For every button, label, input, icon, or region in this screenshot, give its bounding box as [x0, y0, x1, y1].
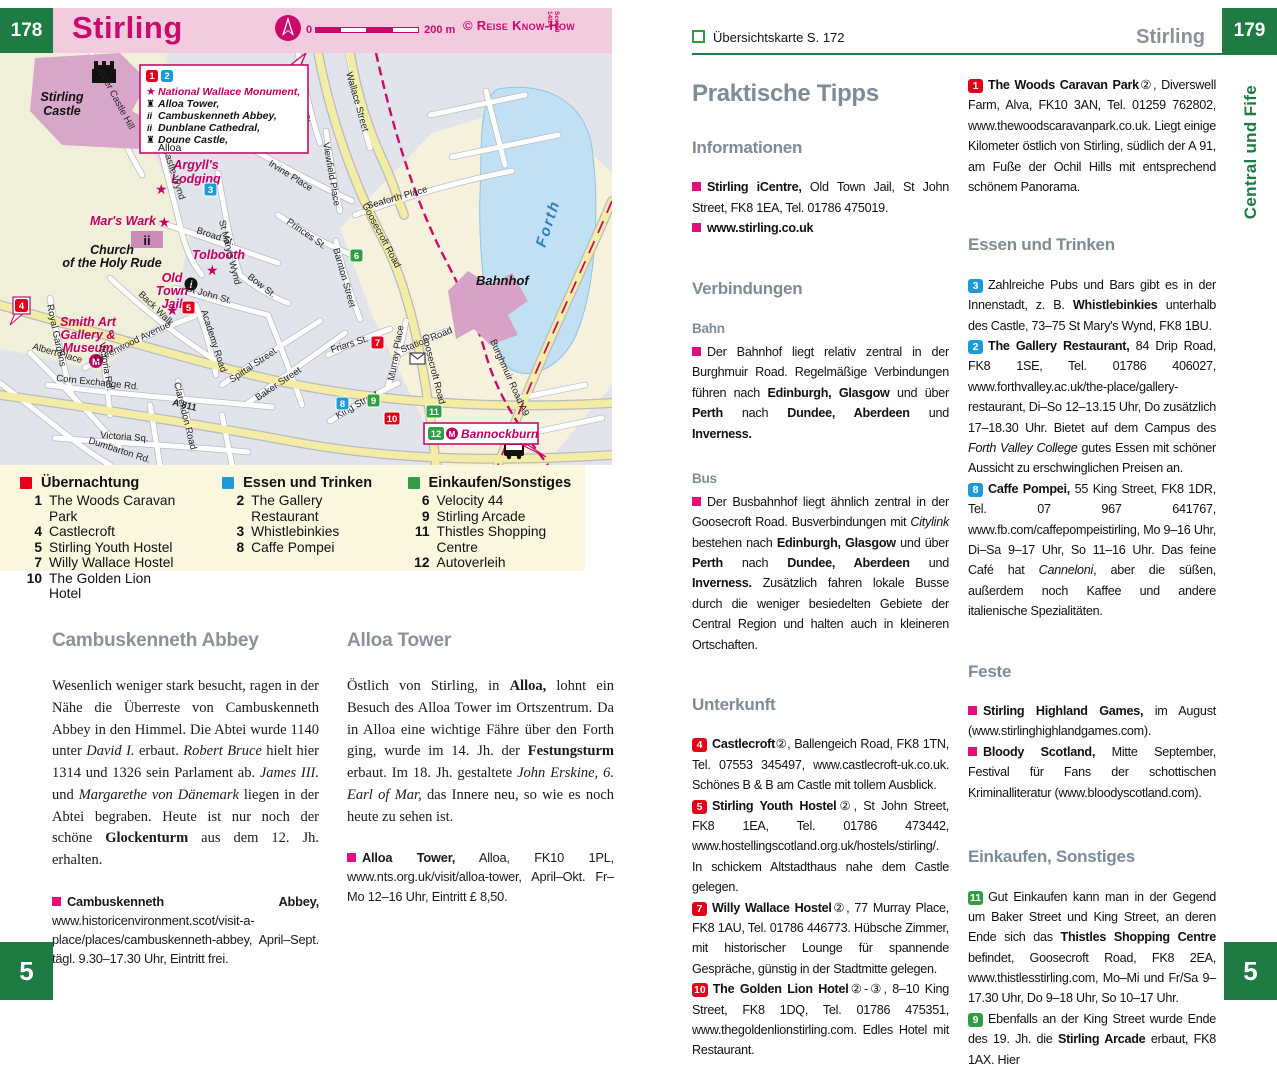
svg-text:6: 6	[354, 251, 359, 262]
map-scalebar: 0 200 m	[306, 24, 455, 36]
poi-label-bannockburn: Bannockburn	[461, 427, 538, 441]
poi-label-church: Church	[90, 243, 134, 257]
chapter-tab-right: 5	[1224, 942, 1277, 1000]
poi-number-badge: 9	[367, 394, 380, 407]
svg-text:8: 8	[340, 399, 345, 410]
svg-text:ii: ii	[143, 233, 150, 248]
legend-group-title: Einkaufen/Sonstiges	[429, 475, 572, 491]
edition-code: Scot19 14/24	[546, 11, 560, 32]
castle-icon: ♜	[146, 99, 155, 110]
legend-item: 7Willy Wallace Hostel	[20, 555, 222, 571]
scale-label: 200 m	[424, 24, 455, 36]
poi-entry: 9Ebenfalls an der King Street wurde Ende…	[968, 1009, 1216, 1070]
article-info-block: Alloa Tower, Alloa, FK10 1PL, www.nts.or…	[347, 848, 614, 906]
poi-entry: 10The Golden Lion Hotel②-③, 8–10 King St…	[692, 979, 949, 1061]
poi-label-smith-gallery: Gallery &	[61, 328, 116, 342]
poi-entry: 2The Gallery Restaurant, 84 Drip Road, F…	[968, 336, 1216, 479]
svg-text:1: 1	[149, 71, 155, 82]
article-body: Wesenlich weniger stark besucht, ragen i…	[52, 676, 319, 872]
cathedral-icon: ii	[147, 123, 153, 133]
poi-label-argylls-lodging: Argyll's	[172, 158, 218, 172]
poi-number-badge: 11	[426, 405, 442, 418]
svg-text:12: 12	[431, 429, 442, 440]
poi-number-badge: 10	[692, 983, 708, 997]
castle-icon: ♜	[146, 135, 155, 146]
poi-label-mars-wark: Mar's Wark	[90, 214, 157, 228]
article-info-block: Cambuskenneth Abbey, www.historicenviron…	[52, 892, 319, 969]
poi-label-stirling-castle: Castle	[43, 104, 81, 118]
legend-group-einkaufen: Einkaufen/Sonstiges 6Velocity 44 9Stirli…	[408, 475, 585, 571]
article-cambuskenneth-abbey: Cambuskenneth Abbey Wesenlich weniger st…	[52, 630, 319, 969]
star-icon: ★	[146, 86, 156, 98]
callout-line: National Wallace Monument,	[158, 86, 300, 98]
poi-number-badge: 3	[204, 183, 217, 196]
bullet-square-icon	[968, 706, 977, 715]
right-page-column-1: Praktische Tipps Informationen Stirling …	[692, 75, 949, 1061]
poi-entry: 5Stirling Youth Hostel②, St John Street,…	[692, 796, 949, 898]
scale-zero: 0	[306, 24, 312, 36]
subsection-heading-bus: Bus	[692, 468, 949, 490]
svg-text:10: 10	[387, 414, 398, 425]
section-heading-feste: Feste	[968, 658, 1216, 686]
right-page-column-2: 1The Woods Caravan Park②, Diverswell Far…	[968, 75, 1216, 1070]
star-icon: ★	[155, 181, 168, 197]
poi-entry: 11Gut Einkaufen kann man in der Gegend u…	[968, 887, 1216, 1009]
info-entry: Der Bahnhof liegt relativ zentral in der…	[692, 342, 949, 444]
legend-color-square	[222, 477, 234, 489]
legend-item: 8Caffe Pompei	[222, 540, 407, 556]
legend-item: 9Stirling Arcade	[408, 509, 585, 525]
poi-label-church: of the Holy Rude	[62, 256, 161, 270]
edition-line: Scot19	[553, 11, 560, 32]
poi-number-badge: 3	[968, 279, 983, 293]
svg-text:11: 11	[429, 407, 440, 418]
poi-number-badge: 7	[692, 902, 707, 916]
poi-number-badge: 8	[336, 397, 349, 410]
section-heading-unterkunft: Unterkunft	[692, 691, 949, 719]
bullet-square-icon	[347, 853, 356, 862]
poi-number-badge: 2	[968, 340, 983, 354]
poi-label-bahnhof: Bahnhof	[476, 273, 530, 288]
legend-item: 10The Golden Lion Hotel	[20, 571, 222, 602]
map-legend: Übernachtung 1The Woods Caravan Park 4Ca…	[0, 465, 585, 571]
info-entry: Stirling Highland Games, im August (www.…	[968, 701, 1216, 742]
map-callout-sights: 1 2 ★ National Wallace Monument, ♜ Alloa…	[140, 53, 308, 154]
info-entry: www.stirling.co.uk	[692, 218, 949, 238]
poi-number-badge: 9	[968, 1013, 983, 1027]
bullet-square-icon	[692, 182, 701, 191]
overview-map-reference: Übersichtskarte S. 172	[692, 30, 845, 45]
section-heading-verbindungen: Verbindungen	[692, 275, 949, 303]
poi-entry: 3Zahlreiche Pubs und Bars gibt es in der…	[968, 275, 1216, 336]
abbey-icon: ii	[147, 111, 153, 121]
legend-group-essen: Essen und Trinken 2The Gallery Restauran…	[222, 475, 407, 571]
legend-group-title: Übernachtung	[41, 475, 139, 491]
section-heading-praktische-tipps: Praktische Tipps	[692, 75, 949, 114]
poi-label-old-town-jail: Old	[162, 271, 183, 285]
legend-item: 12Autoverleih	[408, 555, 585, 571]
poi-label-smith-gallery: Smith Art	[60, 315, 117, 329]
poi-number-badge: 11	[968, 891, 983, 905]
callout-line: Cambuskenneth Abbey,	[158, 110, 277, 122]
legend-item: 4Castlecroft	[20, 524, 222, 540]
poi-entry: 8Caffe Pompei, 55 King Street, FK8 1DR, …	[968, 479, 1216, 622]
bullet-square-icon	[692, 223, 701, 232]
poi-number-badge: 8	[968, 483, 983, 497]
poi-number-badge: 1	[968, 79, 983, 93]
star-icon: ★	[158, 214, 171, 230]
poi-number-badge: 4	[692, 738, 707, 752]
poi-label-old-town-jail: Town	[156, 284, 189, 298]
subsection-heading-bahn: Bahn	[692, 318, 949, 340]
left-page-articles: Cambuskenneth Abbey Wesenlich weniger st…	[52, 630, 614, 969]
church-info-icon: ii	[131, 231, 163, 248]
poi-number-badge: 10	[384, 412, 400, 425]
article-heading: Cambuskenneth Abbey	[52, 630, 319, 652]
page-number-left: 178	[0, 8, 53, 53]
legend-item: 11Thistles Shopping Centre	[408, 524, 585, 555]
legend-item: 5Stirling Youth Hostel	[20, 540, 222, 556]
city-map: ii Stirling Castle Argyll's Lodging ★ Ma…	[0, 53, 612, 465]
info-entry: Der Busbahnhof liegt ähnlich zentral in …	[692, 492, 949, 655]
scale-segment	[315, 27, 341, 33]
bullet-square-icon	[692, 497, 701, 506]
info-text: Cambuskenneth Abbey, www.historicenviron…	[52, 894, 319, 967]
svg-text:7: 7	[375, 338, 380, 349]
poi-number-badge: 5	[692, 800, 707, 814]
section-heading-essen-und-trinken: Essen und Trinken	[968, 231, 1216, 259]
post-office-icon	[410, 353, 425, 364]
svg-text:4: 4	[19, 301, 25, 312]
svg-text:9: 9	[371, 396, 376, 407]
info-entry: Stirling iCentre, Old Town Jail, St John…	[692, 177, 949, 218]
svg-text:5: 5	[186, 303, 192, 314]
section-heading-einkaufen-sonstiges: Einkaufen, Sonstiges	[968, 843, 1216, 871]
article-body: Östlich von Stirling, in Alloa, lohnt ei…	[347, 676, 614, 828]
poi-number-badge: 6	[350, 249, 363, 262]
poi-entry: 1The Woods Caravan Park②, Diverswell Far…	[968, 75, 1216, 197]
star-icon: ★	[206, 262, 219, 278]
svg-text:3: 3	[208, 185, 213, 196]
scale-segment	[393, 27, 419, 33]
chapter-sidebar-label: Central und Fife	[1241, 85, 1261, 219]
map-title: Stirling	[72, 10, 183, 46]
article-alloa-tower: Alloa Tower Östlich von Stirling, in All…	[347, 630, 614, 969]
running-header-title: Stirling	[1080, 26, 1205, 49]
callout-line: Alloa	[158, 142, 182, 154]
svg-text:M: M	[449, 430, 456, 439]
bullet-square-icon	[692, 347, 701, 356]
legend-item: 2The Gallery Restaurant	[222, 493, 407, 524]
callout-line: Dunblane Cathedral,	[158, 122, 260, 134]
poi-entry: 4Castlecroft②, Ballengeich Road, FK8 1TN…	[692, 734, 949, 795]
edition-line: 14/24	[546, 11, 553, 32]
legend-group-uebernachtung: Übernachtung 1The Woods Caravan Park 4Ca…	[20, 475, 222, 571]
svg-text:2: 2	[164, 71, 169, 82]
page-number-right: 179	[1222, 8, 1277, 53]
legend-group-title: Essen und Trinken	[243, 475, 372, 491]
legend-item: 3Whistlebinkies	[222, 524, 407, 540]
poi-number-badge: 7	[371, 336, 384, 349]
section-heading-informationen: Informationen	[692, 134, 949, 162]
bullet-square-icon	[968, 747, 977, 756]
compass-icon	[272, 12, 304, 49]
header-rule	[692, 53, 1277, 55]
callout-line: Alloa Tower,	[157, 98, 220, 110]
info-text: Alloa Tower, Alloa, FK10 1PL, www.nts.or…	[347, 850, 614, 903]
legend-item: 6Velocity 44	[408, 493, 585, 509]
scale-segment	[341, 27, 367, 33]
article-heading: Alloa Tower	[347, 630, 614, 652]
legend-item: 1The Woods Caravan Park	[20, 493, 222, 524]
scale-segment	[367, 27, 393, 33]
poi-label-stirling-castle: Stirling	[40, 90, 83, 104]
chapter-tab-left: 5	[0, 942, 53, 1000]
poi-entry: 7Willy Wallace Hostel②, 77 Murray Place,…	[692, 898, 949, 980]
legend-color-square	[20, 477, 32, 489]
poi-number-badge: 5	[182, 301, 195, 314]
bullet-square-icon	[52, 897, 61, 906]
info-entry: Bloody Scotland, Mitte September, Festiv…	[968, 742, 1216, 803]
legend-color-square	[408, 477, 420, 489]
map-reference-square-icon	[692, 30, 705, 43]
